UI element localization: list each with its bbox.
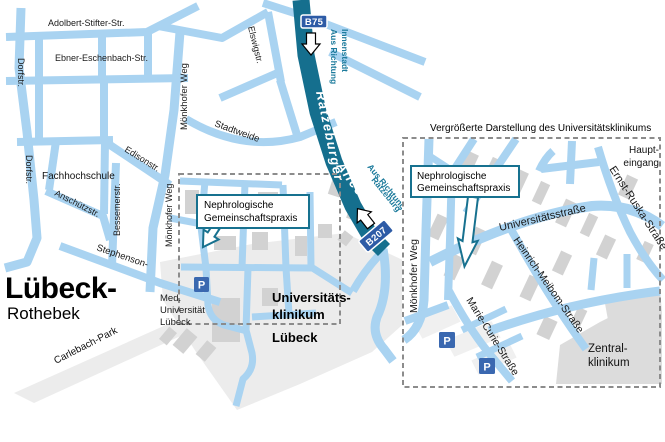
svg-text:Lübeck-: Lübeck- xyxy=(5,272,117,305)
svg-text:eingang: eingang xyxy=(623,158,659,169)
svg-text:Gemeinschaftspraxis: Gemeinschaftspraxis xyxy=(204,213,297,224)
svg-text:P: P xyxy=(483,362,490,374)
street-label: Dorfstr. xyxy=(24,155,34,184)
street-label: Mönkhofer Weg xyxy=(164,184,174,247)
place-label-fachhochschule: Fachhochschule xyxy=(42,171,115,182)
svg-text:Universität: Universität xyxy=(160,305,205,316)
street-label: Elswigstr. xyxy=(246,25,265,64)
svg-text:P: P xyxy=(443,336,450,348)
svg-text:Gemeinschaftspraxis: Gemeinschaftspraxis xyxy=(417,183,510,194)
city-label: Lübeck- Rothebek xyxy=(5,272,117,323)
svg-text:Haupt-: Haupt- xyxy=(629,145,659,156)
svg-text:klinikum: klinikum xyxy=(272,307,325,322)
inset-title: Vergrößerte Darstellung des Universitäts… xyxy=(430,123,651,134)
parking-icon-main: P xyxy=(194,277,209,292)
street-label: Dorfstr. xyxy=(16,58,26,87)
direction-label: Innenstadt xyxy=(340,29,350,72)
svg-text:klinikum: klinikum xyxy=(588,357,630,369)
svg-text:Lübeck: Lübeck xyxy=(160,317,191,328)
street-label: Mönkhofer Weg xyxy=(408,239,420,313)
street-label: Bessemerstr. xyxy=(112,183,122,236)
svg-text:Universitäts-: Universitäts- xyxy=(272,290,351,305)
route-badge-b75: B75 xyxy=(301,15,327,28)
street-label: Ebner-Eschenbach-Str. xyxy=(55,53,148,63)
svg-text:Zentral-: Zentral- xyxy=(588,343,628,355)
street-label: Anschützstr. xyxy=(53,188,101,219)
direction-label: Aus Richtung xyxy=(329,29,339,84)
svg-text:Med.: Med. xyxy=(160,293,181,304)
svg-text:Nephrologische: Nephrologische xyxy=(204,200,274,211)
parking-icon-inset-1: P xyxy=(439,332,455,348)
parking-icon-inset-2: P xyxy=(479,358,495,374)
svg-text:Rothebek: Rothebek xyxy=(7,304,80,323)
street-label: Adolbert-Stifter-Str. xyxy=(48,18,125,28)
svg-text:B75: B75 xyxy=(305,17,324,28)
street-label: Mönkhofer Weg xyxy=(179,63,190,130)
city-map: Adolbert-Stifter-Str. Ebner-Eschenbach-S… xyxy=(0,0,665,442)
svg-text:Lübeck: Lübeck xyxy=(272,330,318,345)
svg-text:Nephrologische: Nephrologische xyxy=(417,171,487,182)
svg-text:P: P xyxy=(198,280,205,292)
